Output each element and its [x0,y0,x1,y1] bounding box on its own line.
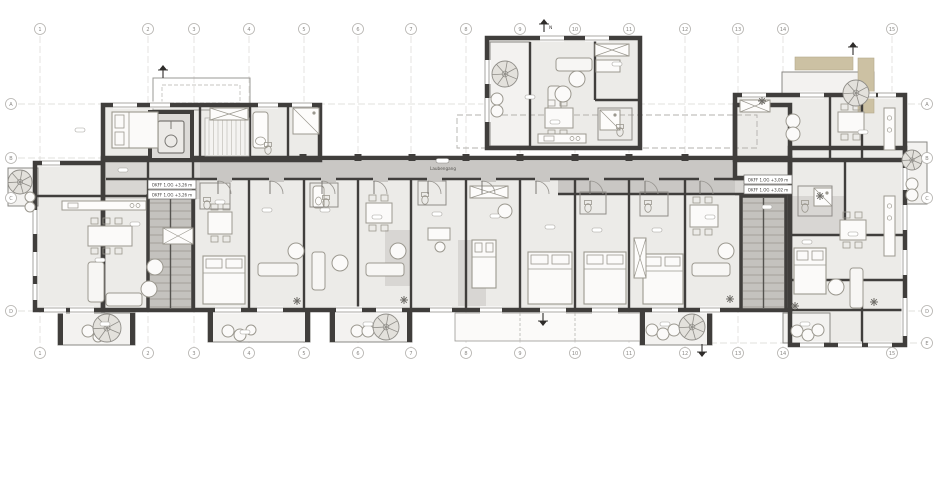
window [42,160,60,167]
dining-table [840,220,866,240]
room-tag [262,208,272,212]
grid-column-bubble: 7 [409,27,412,33]
chair [147,259,163,275]
section-marker-icon [849,42,857,47]
window [32,284,39,300]
level-mark-text: OKFF 1.OG +3,26 m [152,193,193,198]
window [540,307,566,314]
grid-column-bubble: 13 [735,27,741,33]
window [902,320,909,336]
grid-row-bubble: A [925,102,929,108]
chair [25,202,35,212]
kitchen-counter [884,196,895,256]
desk [428,228,450,240]
room-tag [432,212,442,216]
window [800,92,824,99]
chair [82,325,94,337]
north-arrow-icon: N [549,25,552,31]
balcony-wall [58,313,63,345]
building-section [735,105,790,178]
room-tag [130,222,140,226]
window [113,102,137,109]
grid-row-bubble: A [9,102,13,108]
window [32,252,39,276]
room-tag [612,62,622,66]
grid-column-bubble: 6 [356,27,359,33]
sofa [556,58,592,71]
kitchen-counter [62,201,146,210]
room-tag [652,228,662,232]
grid-row-bubble: E [925,341,928,347]
chair [906,189,918,201]
grid-column-bubble: 2 [146,27,149,33]
window [652,307,678,314]
chair [791,325,803,337]
grid-row-bubble: D [925,309,929,315]
sofa [312,252,325,290]
window [480,307,502,314]
gallery-column [409,154,416,161]
balcony [208,311,310,342]
window [150,102,170,109]
grid-column-bubble: 1 [38,27,41,33]
bed [203,256,245,304]
grid-row-bubble: C [925,196,929,202]
level-mark-text: OKFF 1.OG +3,26 m [152,183,193,188]
bed [528,252,572,304]
grid-row-bubble: C [9,196,13,202]
chair [812,324,824,336]
chair [390,243,406,259]
balcony-wall [130,313,135,345]
window [70,307,94,314]
sofa [258,263,298,276]
level-mark-text: OKFF 1.OG +3,09 m [748,178,789,183]
grid-column-bubble: 10 [572,27,578,33]
room-tag [215,200,225,204]
room-tag [75,128,85,132]
chair [906,178,918,190]
room-tag [550,120,560,124]
kitchen-counter [538,134,586,143]
balcony-wall [640,310,645,345]
awning [795,57,853,70]
room-tag [802,240,812,244]
grid-row-bubble: D [9,309,13,315]
floor-plan: OKFF 1.OG +3,26 m OKFF 1.OG +3,26 m OKFF… [0,0,934,480]
chair [828,279,844,295]
window [902,298,909,323]
grid-column-bubble: 8 [464,351,467,357]
dining-table [545,108,573,128]
window [838,342,862,349]
bed [794,248,826,294]
room-tag [660,322,670,326]
chair [288,243,304,259]
window [484,98,491,122]
grid-column-bubble: 12 [682,27,688,33]
room-tag [240,330,250,334]
chair [657,328,669,340]
sofa [106,293,142,306]
floor-plan-drawing: OKFF 1.OG +3,26 m OKFF 1.OG +3,26 m OKFF… [0,0,934,480]
bed [112,112,158,148]
room-tag [320,208,330,212]
chair [491,93,503,105]
grid-column-bubble: 1 [38,351,41,357]
window [800,342,824,349]
terrace [455,313,640,341]
window [868,342,892,349]
grid-column-bubble: 5 [302,351,305,357]
grid-column-bubble: 11 [626,351,632,357]
room-tag [95,258,105,262]
chair [141,281,157,297]
room-tag [705,215,715,219]
window [257,307,283,314]
chair [332,255,348,271]
window [700,307,720,314]
grid-column-bubble: 4 [247,27,250,33]
room-tag [592,228,602,232]
chair [491,105,503,117]
chair [668,324,680,336]
room-tag [525,95,535,99]
grid-column-bubble: 14 [780,27,786,33]
gallery-column [355,154,362,161]
chair [569,71,585,87]
shower-drain [613,113,616,116]
sofa [88,262,104,302]
grid-row-bubble: B [9,156,13,162]
chair [646,324,658,336]
grid-column-bubble: 9 [518,27,521,33]
bed [584,252,626,304]
window [902,250,909,275]
grid-column-bubble: 13 [735,351,741,357]
chair [435,242,445,252]
room-tag [100,322,110,326]
window [484,60,491,84]
grid-column-bubble: 12 [682,351,688,357]
section-marker-icon [540,19,548,24]
room-tag [545,225,555,229]
window [258,102,278,109]
level-mark-text: OKFF 1.OG +3,02 m [748,188,789,193]
room-tag [848,232,858,236]
window [292,102,312,109]
gallery-column [300,154,307,161]
room-tag [372,215,382,219]
room-tag [118,168,128,172]
gallery-column [517,154,524,161]
grid-column-bubble: 7 [409,351,412,357]
chair [718,243,734,259]
window [540,35,564,42]
chair [25,192,35,202]
balcony-wall [208,311,213,342]
chair [786,127,800,141]
chair [222,325,234,337]
window [32,210,39,234]
grid-column-bubble: 8 [464,27,467,33]
chair [351,325,363,337]
corridor-label-text: Laubengang [430,166,456,171]
window [336,307,362,314]
shower-drain [312,111,315,114]
bed [472,240,496,288]
room-tag [762,205,772,209]
bed [643,254,683,304]
dining-table [838,112,864,132]
grid-column-bubble: 4 [247,351,250,357]
balcony-wall [305,311,310,342]
grid-column-bubble: 2 [146,351,149,357]
window [585,35,609,42]
grid-column-bubble: 9 [518,351,521,357]
balcony-wall [330,311,335,342]
window [215,307,241,314]
window [44,307,66,314]
room-tag [363,322,373,326]
kitchen-counter [884,108,895,150]
sofa [692,263,730,276]
dining-table [88,226,132,246]
grid-column-bubble: 10 [572,351,578,357]
shower-drain [825,191,828,194]
window [878,92,896,99]
gallery-column [682,154,689,161]
dining-table [208,212,232,234]
grid-row-bubble: B [925,156,929,162]
window [902,205,909,230]
gallery-column [463,154,470,161]
window [376,307,402,314]
grid-column-bubble: 3 [192,27,195,33]
grid-column-bubble: 6 [356,351,359,357]
room-tag [800,322,810,326]
grid-column-bubble: 14 [780,351,786,357]
gallery-column [572,154,579,161]
chair [786,114,800,128]
room-tag [490,214,500,218]
dining-table [366,203,392,223]
grid-column-bubble: 15 [889,351,895,357]
grid-column-bubble: 3 [192,351,195,357]
sofa [366,263,404,276]
window [592,307,618,314]
section-marker-icon [159,65,167,70]
chair [362,325,374,337]
grid-column-bubble: 5 [302,27,305,33]
grid-column-bubble: 11 [626,27,632,33]
section-marker-icon [698,352,706,357]
chair [555,86,571,102]
balcony-wall [407,311,412,342]
grid-column-bubble: 15 [889,27,895,33]
sofa [850,268,863,308]
gallery-column [626,154,633,161]
entrance-canopy-outline [162,85,240,103]
window [430,307,452,314]
balcony-wall [707,310,712,345]
room-tag [858,130,868,134]
